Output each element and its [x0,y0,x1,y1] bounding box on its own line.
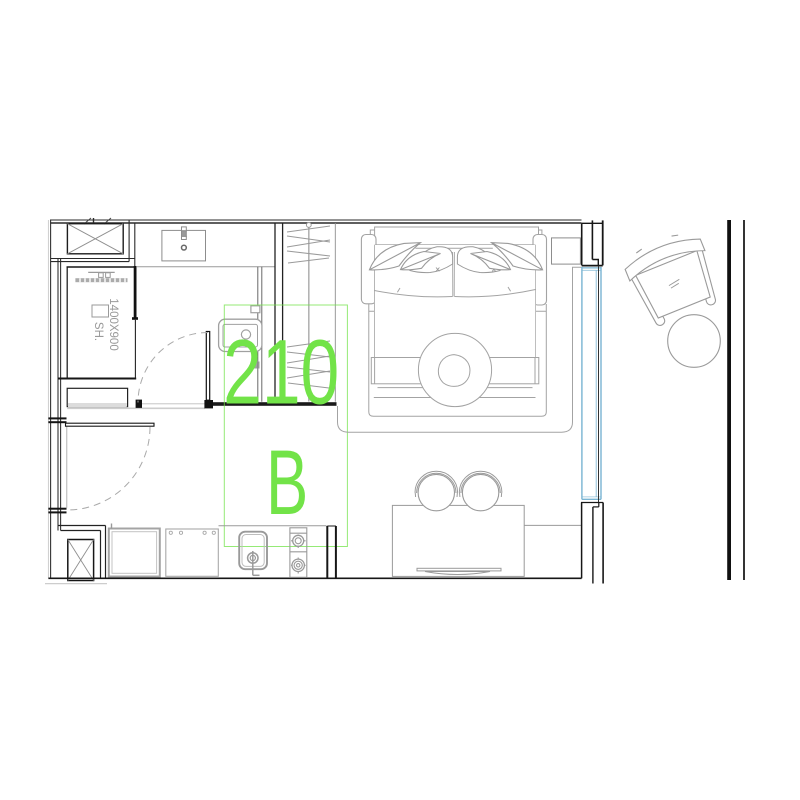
svg-text:B: B [266,430,308,534]
svg-text:210: 210 [223,321,339,424]
svg-text:SH.: SH. [92,322,104,341]
svg-text:1400X900: 1400X900 [107,298,119,350]
